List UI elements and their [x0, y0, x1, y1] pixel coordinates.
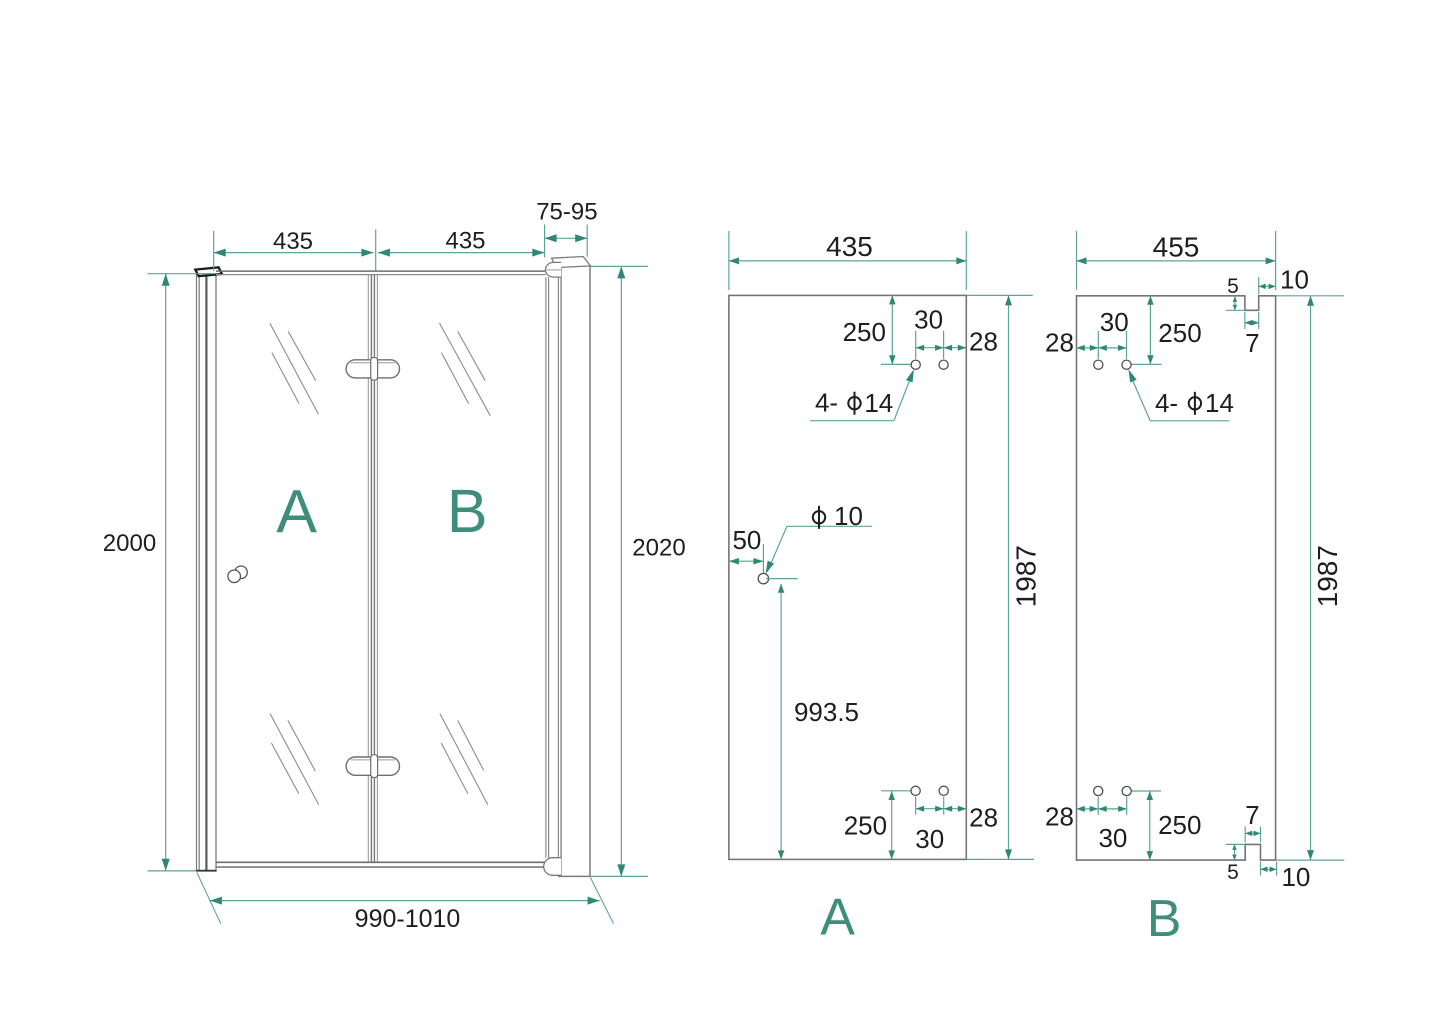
svg-text:75-95: 75-95 — [536, 199, 597, 226]
svg-text:250: 250 — [1158, 810, 1201, 840]
svg-text:5: 5 — [1227, 275, 1239, 298]
svg-text:B: B — [1147, 890, 1182, 948]
svg-text:250: 250 — [1158, 318, 1201, 348]
svg-text:250: 250 — [843, 317, 886, 347]
svg-text:14: 14 — [864, 388, 893, 418]
svg-text:5: 5 — [1227, 861, 1239, 884]
svg-text:435: 435 — [826, 231, 873, 262]
svg-text:28: 28 — [969, 802, 998, 832]
svg-text:7: 7 — [1245, 328, 1259, 358]
svg-text:1987: 1987 — [1312, 545, 1343, 607]
svg-text:250: 250 — [844, 811, 887, 841]
svg-text:990-1010: 990-1010 — [355, 905, 461, 933]
svg-text:10: 10 — [1280, 265, 1309, 295]
svg-text:A: A — [820, 889, 855, 947]
svg-text:455: 455 — [1153, 232, 1200, 263]
svg-text:28: 28 — [969, 326, 998, 356]
svg-text:1987: 1987 — [1010, 545, 1041, 607]
svg-text:993.5: 993.5 — [794, 697, 859, 727]
svg-text:50: 50 — [732, 525, 761, 555]
svg-text:2000: 2000 — [103, 530, 156, 557]
svg-text:10: 10 — [834, 501, 863, 531]
svg-text:435: 435 — [273, 228, 313, 255]
svg-text:28: 28 — [1045, 328, 1074, 358]
svg-text:30: 30 — [1098, 823, 1127, 853]
svg-text:7: 7 — [1245, 800, 1259, 830]
svg-text:B: B — [447, 477, 488, 545]
svg-text:14: 14 — [1205, 388, 1234, 418]
svg-text:30: 30 — [914, 305, 943, 335]
svg-text:2020: 2020 — [632, 534, 685, 561]
svg-text:435: 435 — [445, 227, 485, 254]
svg-text:4-: 4- — [1155, 388, 1178, 418]
svg-text:A: A — [276, 478, 317, 546]
svg-text:4-: 4- — [815, 388, 838, 418]
svg-text:30: 30 — [1100, 307, 1129, 337]
svg-text:10: 10 — [1281, 862, 1310, 892]
svg-text:28: 28 — [1045, 802, 1074, 832]
svg-text:30: 30 — [915, 824, 944, 854]
